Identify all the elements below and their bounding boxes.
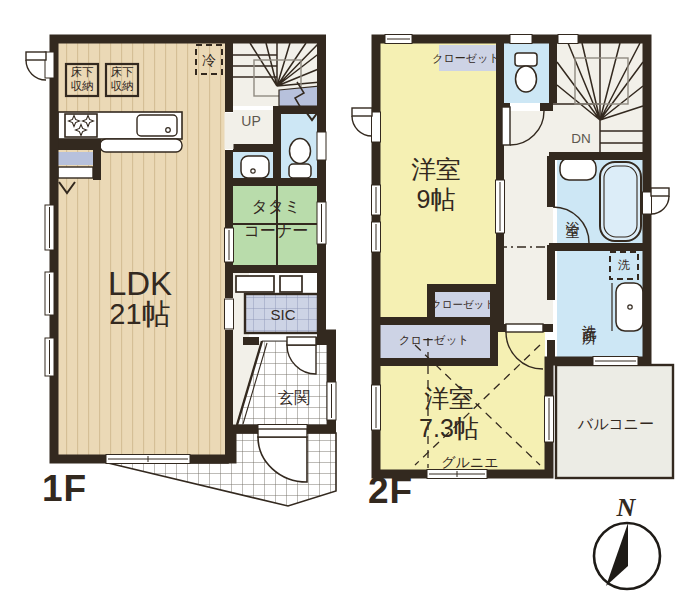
ldk-size-label: 21帖 — [109, 300, 170, 329]
bathroom-label: 浴室 — [566, 210, 580, 216]
compass-icon — [594, 523, 660, 589]
underfloor-storage-label-2a: 床下 — [111, 67, 134, 79]
hall-storage-2 — [280, 276, 302, 292]
floor2-title: 2F — [368, 472, 413, 509]
door-1f-side-entry — [26, 52, 54, 80]
shoe-closet-label: SIC — [270, 307, 295, 322]
closet-top-label: クローゼット — [432, 53, 499, 64]
washer-label: 洗 — [618, 259, 630, 271]
closet-low-label: クローゼット — [399, 335, 469, 347]
underfloor-storage-label-1b: 収納 — [71, 81, 94, 93]
room9-size-label: 9帖 — [417, 187, 456, 212]
counter-shelf — [58, 152, 93, 165]
bath-sink-icon — [560, 158, 596, 180]
underfloor-storage-label-2b: 収納 — [111, 81, 134, 93]
washbasin-icon — [612, 283, 643, 331]
floor1-title: 1F — [42, 470, 87, 507]
balcony-label: バルコニー — [578, 416, 654, 431]
attic-label: グルニエ — [441, 455, 498, 469]
closet-mid-label: クローゼット — [431, 299, 495, 310]
ldk-label: LDK — [108, 267, 172, 300]
bathtub-icon — [600, 162, 641, 241]
door-bath-exterior — [643, 188, 670, 214]
washroom-label: 洗面所 — [582, 314, 597, 323]
tatami-label-2: コーナー — [244, 223, 309, 239]
room9-label: 洋室 — [411, 157, 461, 182]
ldk-wood-floor — [58, 43, 225, 455]
room73-label: 洋室 — [424, 386, 474, 411]
window-1f-left — [45, 205, 54, 376]
stairs-up-label: UP — [241, 114, 260, 128]
fridge-label: 冷 — [202, 53, 216, 67]
floorplan-drawing — [0, 0, 686, 600]
hall-storage-1 — [236, 276, 274, 292]
room73-size-label: 7.3帖 — [419, 416, 479, 441]
toilet-2f-icon — [515, 53, 537, 92]
stairs-2f-floor — [553, 43, 643, 156]
door-2f-left — [352, 108, 381, 142]
sink-1f-icon — [241, 156, 269, 178]
tatami-label-1: タタミ — [251, 199, 300, 215]
floorplan-page: 床下 収納 床下 収納 冷 UP タタミ コーナー LDK 21帖 SIC 玄関… — [0, 0, 686, 600]
hall-2f-floor — [504, 111, 553, 328]
kitchen-sink-icon — [137, 115, 177, 136]
stairs-down-label: DN — [571, 132, 591, 146]
underfloor-storage-label-1a: 床下 — [71, 67, 94, 79]
north-label: N — [617, 495, 636, 521]
entrance-label: 玄関 — [278, 390, 310, 406]
